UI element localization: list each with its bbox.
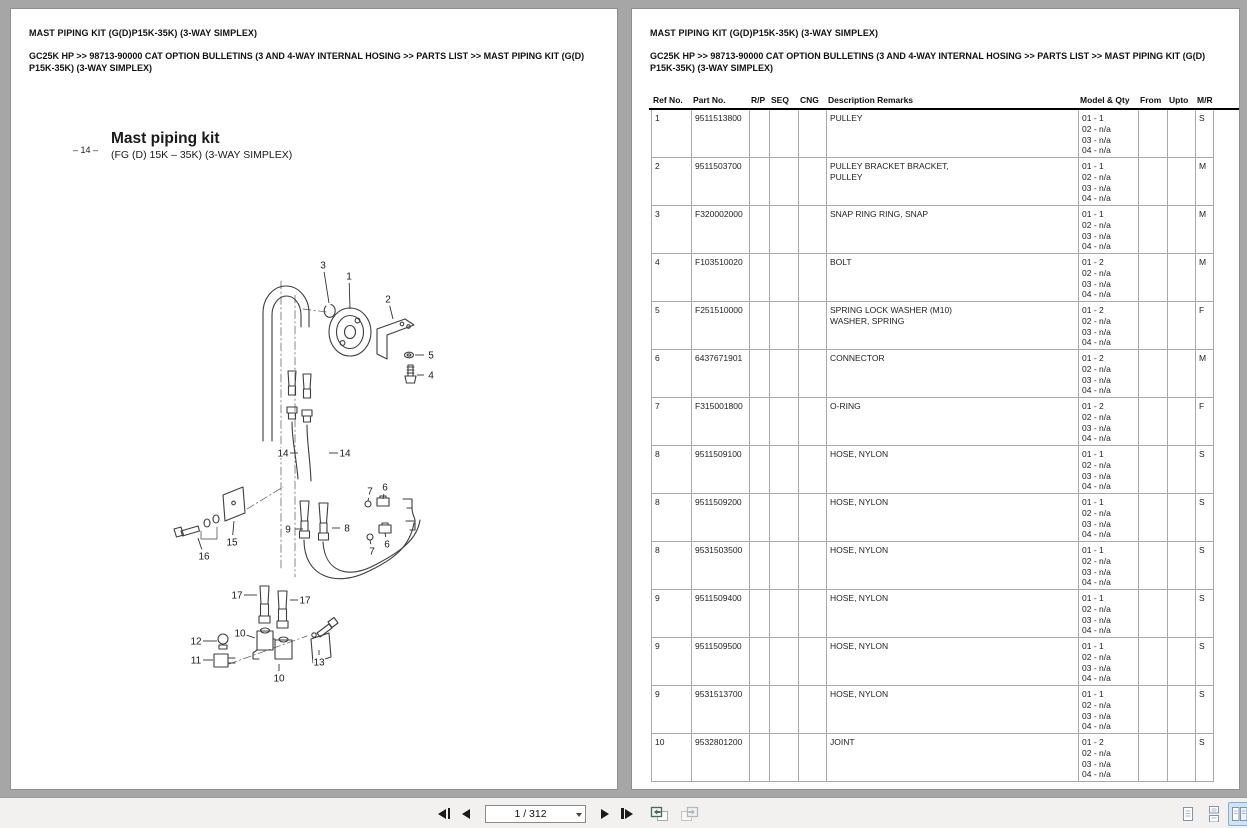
- viewer-toolbar: 1 / 312: [0, 797, 1247, 828]
- table-row: 2 9511503700 PULLEY BRACKET BRACKET,PULL…: [651, 158, 1214, 206]
- cell-upto: [1167, 110, 1195, 157]
- facing-pages-layout-button[interactable]: [1228, 802, 1247, 826]
- next-page-button[interactable]: [594, 803, 616, 825]
- cell-rp: [749, 350, 769, 397]
- cell-rp: [749, 494, 769, 541]
- cell-mr: S: [1195, 446, 1214, 493]
- cell-seq: [769, 254, 798, 301]
- callout-label: 16: [198, 552, 210, 563]
- cell-desc: SNAP RING RING, SNAP: [826, 206, 1078, 253]
- cell-cng: [798, 206, 826, 253]
- cell-upto: [1167, 590, 1195, 637]
- single-page-icon: [1180, 806, 1196, 822]
- page-layout-controls: [1176, 798, 1247, 828]
- cell-upto: [1167, 542, 1195, 589]
- previous-page-button[interactable]: [455, 803, 477, 825]
- cell-mr: M: [1195, 350, 1214, 397]
- cell-desc: HOSE, NYLON: [826, 686, 1078, 733]
- callout-label: 9: [285, 525, 291, 536]
- cell-desc: CONNECTOR: [826, 350, 1078, 397]
- cell-part: 9511513800: [691, 110, 749, 157]
- callout-label: 4: [428, 371, 434, 382]
- cell-seq: [769, 686, 798, 733]
- cell-cng: [798, 590, 826, 637]
- callout-label: 17: [231, 591, 243, 602]
- callout-label: 7: [367, 487, 373, 498]
- previous-view-icon: [650, 806, 669, 822]
- cell-mr: S: [1195, 734, 1214, 781]
- cell-from: [1138, 350, 1167, 397]
- callout-label: 8: [344, 524, 350, 535]
- cell-mr: M: [1195, 254, 1214, 301]
- cell-cng: [798, 302, 826, 349]
- cell-mr: S: [1195, 542, 1214, 589]
- cell-from: [1138, 638, 1167, 685]
- table-row: 1 9511513800 PULLEY 01 - 102 - n/a03 - n…: [651, 110, 1214, 158]
- cell-rp: [749, 446, 769, 493]
- cell-seq: [769, 542, 798, 589]
- cell-mr: M: [1195, 206, 1214, 253]
- callout-label: 1: [346, 272, 352, 283]
- cell-model-qty: 01 - 102 - n/a03 - n/a04 - n/a: [1078, 686, 1138, 733]
- cell-rp: [749, 110, 769, 157]
- cell-ref: 9: [651, 590, 691, 637]
- cell-ref: 3: [651, 206, 691, 253]
- column-header: Ref No.: [651, 95, 691, 105]
- cell-ref: 5: [651, 302, 691, 349]
- cell-rp: [749, 542, 769, 589]
- table-row: 8 9531503500 HOSE, NYLON 01 - 102 - n/a0…: [651, 542, 1214, 590]
- column-header: Upto: [1167, 95, 1195, 105]
- cell-mr: F: [1195, 398, 1214, 445]
- cell-ref: 1: [651, 110, 691, 157]
- cell-part: 9532801200: [691, 734, 749, 781]
- cell-from: [1138, 446, 1167, 493]
- cell-ref: 8: [651, 494, 691, 541]
- previous-page-icon: [462, 809, 470, 819]
- callout-label: 14: [339, 449, 351, 460]
- cell-from: [1138, 542, 1167, 589]
- cell-mr: S: [1195, 638, 1214, 685]
- table-row: 4 F103510020 BOLT 01 - 202 - n/a03 - n/a…: [651, 254, 1214, 302]
- cell-ref: 4: [651, 254, 691, 301]
- cell-mr: M: [1195, 158, 1214, 205]
- last-page-bar: [621, 808, 624, 819]
- cell-model-qty: 01 - 202 - n/a03 - n/a04 - n/a: [1078, 734, 1138, 781]
- column-header: Model & Qty: [1078, 95, 1138, 105]
- cell-from: [1138, 254, 1167, 301]
- right-page-title: MAST PIPING KIT (G(D)P15K-35K) (3-WAY SI…: [650, 28, 1220, 38]
- table-row: 8 9511509200 HOSE, NYLON 01 - 102 - n/a0…: [651, 494, 1214, 542]
- callout-label: 14: [277, 449, 289, 460]
- next-page-icon: [601, 809, 609, 819]
- cell-mr: S: [1195, 686, 1214, 733]
- cell-from: [1138, 686, 1167, 733]
- cell-part: 6437671901: [691, 350, 749, 397]
- cell-ref: 8: [651, 542, 691, 589]
- cell-model-qty: 01 - 102 - n/a03 - n/a04 - n/a: [1078, 446, 1138, 493]
- cell-ref: 10: [651, 734, 691, 781]
- page-number-combobox[interactable]: 1 / 312: [485, 805, 586, 823]
- cell-ref: 9: [651, 638, 691, 685]
- callout-label: 6: [382, 483, 388, 494]
- cell-seq: [769, 302, 798, 349]
- cell-upto: [1167, 494, 1195, 541]
- cell-from: [1138, 302, 1167, 349]
- cell-seq: [769, 734, 798, 781]
- callout-label: 12: [190, 637, 202, 648]
- callout-label: 2: [385, 295, 391, 306]
- cell-model-qty: 01 - 102 - n/a03 - n/a04 - n/a: [1078, 158, 1138, 205]
- cell-model-qty: 01 - 102 - n/a03 - n/a04 - n/a: [1078, 494, 1138, 541]
- chevron-down-icon[interactable]: [576, 813, 582, 817]
- cell-ref: 7: [651, 398, 691, 445]
- cell-cng: [798, 686, 826, 733]
- cell-mr: S: [1195, 590, 1214, 637]
- cell-rp: [749, 638, 769, 685]
- facing-pages-icon: [1232, 806, 1247, 822]
- column-header: M/R: [1195, 95, 1214, 105]
- cell-desc: HOSE, NYLON: [826, 590, 1078, 637]
- cell-part: F320002000: [691, 206, 749, 253]
- cell-rp: [749, 734, 769, 781]
- cell-mr: S: [1195, 494, 1214, 541]
- page-navigation: 1 / 312: [433, 798, 700, 828]
- cell-cng: [798, 158, 826, 205]
- cell-desc: HOSE, NYLON: [826, 494, 1078, 541]
- cell-rp: [749, 686, 769, 733]
- cell-seq: [769, 446, 798, 493]
- column-header: From: [1138, 95, 1167, 105]
- first-page-icon: [438, 809, 446, 819]
- cell-desc: HOSE, NYLON: [826, 542, 1078, 589]
- callout-label: 10: [234, 629, 246, 640]
- cell-seq: [769, 158, 798, 205]
- column-header: SEQ: [769, 95, 798, 105]
- table-row: 10 9532801200 JOINT 01 - 202 - n/a03 - n…: [651, 734, 1214, 782]
- cell-cng: [798, 254, 826, 301]
- pdf-viewer: MAST PIPING KIT (G(D)P15K-35K) (3-WAY SI…: [0, 0, 1247, 828]
- cell-cng: [798, 398, 826, 445]
- cell-rp: [749, 254, 769, 301]
- parts-table-body: 1 9511513800 PULLEY 01 - 102 - n/a03 - n…: [651, 110, 1214, 782]
- cell-seq: [769, 206, 798, 253]
- cell-cng: [798, 350, 826, 397]
- table-row: 9 9511509400 HOSE, NYLON 01 - 102 - n/a0…: [651, 590, 1214, 638]
- cell-part: 9531503500: [691, 542, 749, 589]
- cell-desc: O-RING: [826, 398, 1078, 445]
- cell-seq: [769, 494, 798, 541]
- cell-model-qty: 01 - 202 - n/a03 - n/a04 - n/a: [1078, 398, 1138, 445]
- table-row: 9 9531513700 HOSE, NYLON 01 - 102 - n/a0…: [651, 686, 1214, 734]
- cell-cng: [798, 446, 826, 493]
- cell-model-qty: 01 - 202 - n/a03 - n/a04 - n/a: [1078, 254, 1138, 301]
- cell-from: [1138, 110, 1167, 157]
- cell-upto: [1167, 638, 1195, 685]
- callout-label: 5: [428, 351, 434, 362]
- cell-from: [1138, 158, 1167, 205]
- cell-ref: 8: [651, 446, 691, 493]
- cell-mr: F: [1195, 302, 1214, 349]
- cell-part: 9511509100: [691, 446, 749, 493]
- table-row: 6 6437671901 CONNECTOR 01 - 202 - n/a03 …: [651, 350, 1214, 398]
- cell-rp: [749, 158, 769, 205]
- cell-from: [1138, 494, 1167, 541]
- cell-model-qty: 01 - 102 - n/a03 - n/a04 - n/a: [1078, 206, 1138, 253]
- cell-desc: HOSE, NYLON: [826, 638, 1078, 685]
- cell-ref: 9: [651, 686, 691, 733]
- cell-model-qty: 01 - 102 - n/a03 - n/a04 - n/a: [1078, 542, 1138, 589]
- cell-part: 9511509400: [691, 590, 749, 637]
- single-page-layout-button[interactable]: [1176, 802, 1200, 826]
- column-header: CNG: [798, 95, 826, 105]
- table-row: 5 F251510000 SPRING LOCK WASHER (M10)WAS…: [651, 302, 1214, 350]
- cell-rp: [749, 206, 769, 253]
- cell-part: F251510000: [691, 302, 749, 349]
- cell-part: 9511509500: [691, 638, 749, 685]
- cell-desc: PULLEY BRACKET BRACKET,PULLEY: [826, 158, 1078, 205]
- last-page-icon: [625, 809, 633, 819]
- cell-part: 9511509200: [691, 494, 749, 541]
- exploded-parts-diagram: 312541414151698767617171211101013: [11, 9, 618, 790]
- cell-desc: BOLT: [826, 254, 1078, 301]
- cell-upto: [1167, 206, 1195, 253]
- cell-upto: [1167, 446, 1195, 493]
- column-header: Part No.: [691, 95, 749, 105]
- callout-label: 6: [384, 540, 390, 551]
- page-diagram: MAST PIPING KIT (G(D)P15K-35K) (3-WAY SI…: [10, 8, 618, 790]
- callout-label: 11: [191, 656, 202, 667]
- cell-upto: [1167, 254, 1195, 301]
- cell-cng: [798, 494, 826, 541]
- cell-model-qty: 01 - 102 - n/a03 - n/a04 - n/a: [1078, 638, 1138, 685]
- column-header: Description Remarks: [826, 95, 1078, 105]
- cell-upto: [1167, 158, 1195, 205]
- cell-part: 9531513700: [691, 686, 749, 733]
- callout-label: 15: [226, 538, 238, 549]
- cell-seq: [769, 638, 798, 685]
- cell-cng: [798, 638, 826, 685]
- table-row: 9 9511509500 HOSE, NYLON 01 - 102 - n/a0…: [651, 638, 1214, 686]
- cell-desc: JOINT: [826, 734, 1078, 781]
- cell-seq: [769, 590, 798, 637]
- continuous-layout-button[interactable]: [1202, 802, 1226, 826]
- page-parts-list: MAST PIPING KIT (G(D)P15K-35K) (3-WAY SI…: [631, 8, 1240, 790]
- cell-model-qty: 01 - 202 - n/a03 - n/a04 - n/a: [1078, 350, 1138, 397]
- cell-ref: 6: [651, 350, 691, 397]
- next-view-button[interactable]: [678, 803, 700, 825]
- cell-rp: [749, 590, 769, 637]
- cell-upto: [1167, 686, 1195, 733]
- cell-cng: [798, 734, 826, 781]
- cell-from: [1138, 206, 1167, 253]
- continuous-layout-icon: [1206, 806, 1222, 822]
- cell-cng: [798, 110, 826, 157]
- cell-from: [1138, 734, 1167, 781]
- cell-model-qty: 01 - 102 - n/a03 - n/a04 - n/a: [1078, 590, 1138, 637]
- callout-label: 10: [273, 674, 285, 685]
- callout-label: 7: [369, 547, 375, 558]
- cell-part: 9511503700: [691, 158, 749, 205]
- cell-upto: [1167, 302, 1195, 349]
- callout-label: 3: [320, 261, 326, 272]
- page-indicator: 1 / 312: [486, 808, 585, 820]
- last-page-button[interactable]: [616, 803, 638, 825]
- cell-seq: [769, 398, 798, 445]
- table-row: 8 9511509100 HOSE, NYLON 01 - 102 - n/a0…: [651, 446, 1214, 494]
- cell-seq: [769, 350, 798, 397]
- cell-desc: SPRING LOCK WASHER (M10)WASHER, SPRING: [826, 302, 1078, 349]
- previous-view-button[interactable]: [648, 803, 670, 825]
- cell-upto: [1167, 398, 1195, 445]
- right-breadcrumb: GC25K HP >> 98713-90000 CAT OPTION BULLE…: [650, 51, 1212, 74]
- next-view-icon: [680, 806, 699, 822]
- cell-upto: [1167, 734, 1195, 781]
- callout-label: 17: [299, 596, 311, 607]
- table-row: 3 F320002000 SNAP RING RING, SNAP 01 - 1…: [651, 206, 1214, 254]
- cell-seq: [769, 110, 798, 157]
- cell-from: [1138, 398, 1167, 445]
- cell-desc: PULLEY: [826, 110, 1078, 157]
- cell-rp: [749, 302, 769, 349]
- cell-model-qty: 01 - 202 - n/a03 - n/a04 - n/a: [1078, 302, 1138, 349]
- cell-cng: [798, 542, 826, 589]
- cell-model-qty: 01 - 102 - n/a03 - n/a04 - n/a: [1078, 110, 1138, 157]
- callout-label: 13: [313, 658, 325, 669]
- table-row: 7 F315001800 O-RING 01 - 202 - n/a03 - n…: [651, 398, 1214, 446]
- cell-mr: S: [1195, 110, 1214, 157]
- cell-part: F103510020: [691, 254, 749, 301]
- cell-rp: [749, 398, 769, 445]
- column-header: R/P: [749, 95, 769, 105]
- cell-ref: 2: [651, 158, 691, 205]
- parts-table-header: Ref No.Part No.R/PSEQCNGDescription Rema…: [651, 95, 1214, 105]
- cell-part: F315001800: [691, 398, 749, 445]
- callout-layer: 312541414151698767617171211101013: [190, 261, 434, 685]
- cell-upto: [1167, 350, 1195, 397]
- cell-desc: HOSE, NYLON: [826, 446, 1078, 493]
- first-page-bar: [448, 808, 451, 819]
- first-page-button[interactable]: [433, 803, 455, 825]
- cell-from: [1138, 590, 1167, 637]
